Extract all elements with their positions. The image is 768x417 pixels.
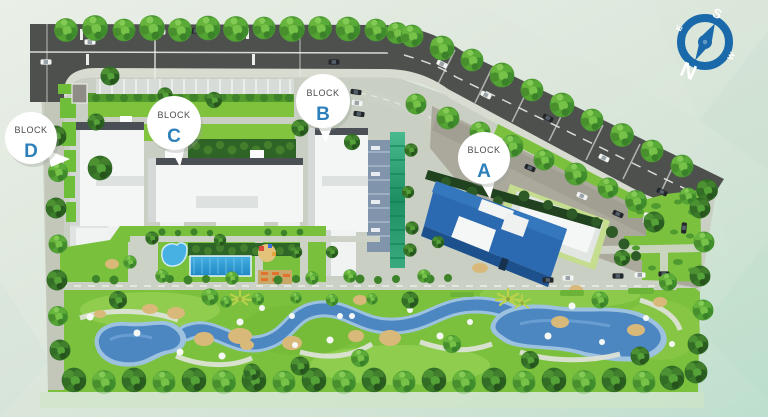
- svg-text:BLOCK: BLOCK: [467, 145, 500, 155]
- svg-text:BLOCK: BLOCK: [157, 110, 190, 120]
- svg-text:BLOCK: BLOCK: [14, 125, 47, 135]
- svg-text:D: D: [24, 141, 38, 162]
- svg-text:A: A: [477, 161, 491, 182]
- svg-text:C: C: [167, 126, 181, 147]
- svg-text:BLOCK: BLOCK: [306, 88, 339, 98]
- svg-text:B: B: [316, 104, 330, 125]
